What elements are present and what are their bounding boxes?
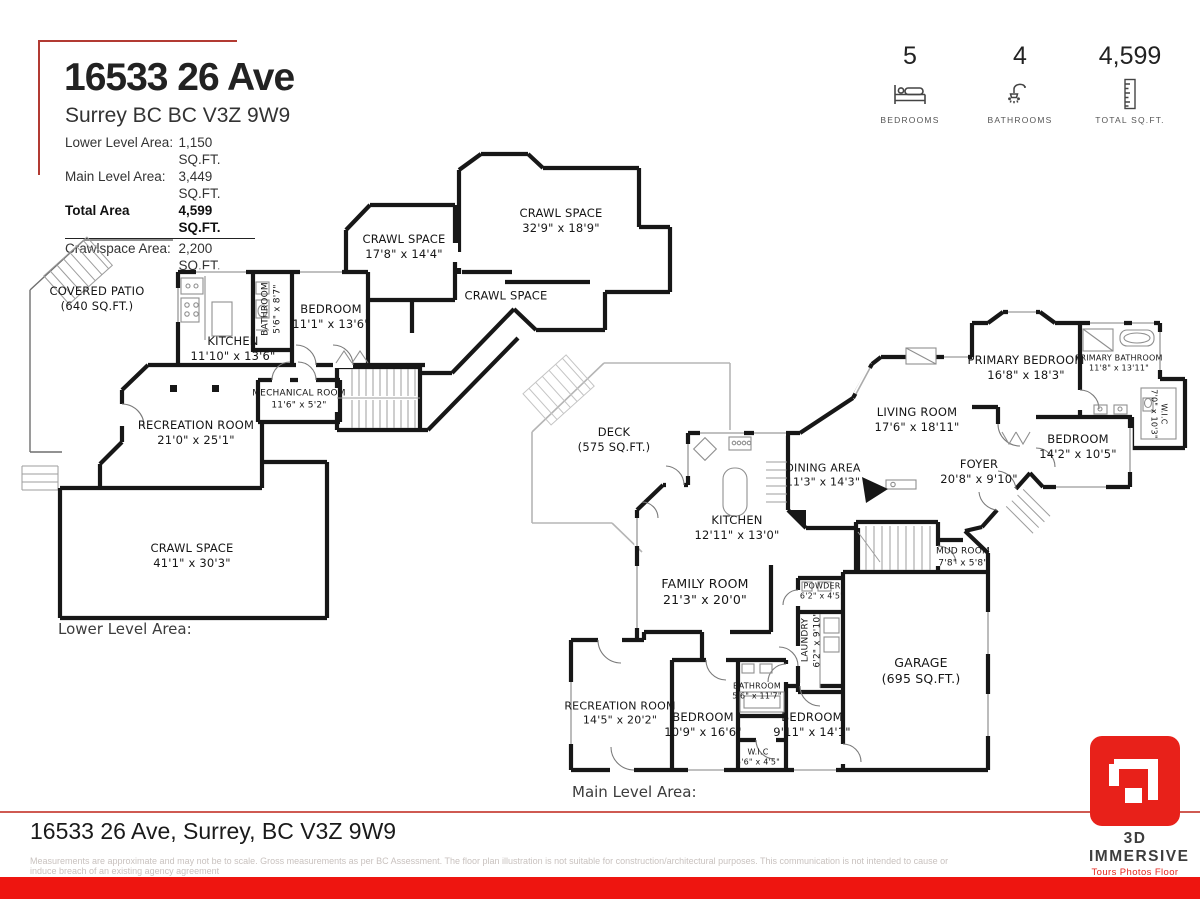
room-label-family-room: FAMILY ROOM21'3" x 20'0": [661, 576, 748, 609]
room-label-crawl-space-3: CRAWL SPACE: [465, 289, 548, 304]
room-label-primary-bedroom: PRIMARY BEDROOM16'8" x 18'3": [967, 353, 1084, 383]
bottom-red-bar: [0, 877, 1200, 899]
room-label-bedroom-lower: BEDROOM11'1" x 13'6": [292, 302, 370, 332]
deck-stairs-hatch: [523, 355, 594, 425]
room-label-bedroom-main-3: BEDROOM9'11" x 14'1": [773, 710, 851, 740]
footer-disclaimer: Measurements are approximate and may not…: [30, 856, 960, 876]
room-label-deck: DECK(575 SQ.FT.): [578, 425, 651, 455]
footer-divider: [0, 811, 1200, 813]
room-label-foyer: FOYER20'8" x 9'10": [940, 457, 1018, 487]
room-label-garage: GARAGE(695 SQ.FT.): [882, 655, 961, 688]
room-label-dining-area: DINING AREA11'3" x 14'3": [785, 462, 860, 491]
room-label-covered-patio: COVERED PATIO(640 SQ.FT.): [49, 284, 145, 314]
room-label-crawl-space-1: CRAWL SPACE17'8" x 14'4": [363, 232, 446, 262]
room-label-laundry: LAUNDRY6'2" x 9'10": [800, 612, 823, 667]
room-label-mechanical-room: MECHANICAL ROOM11'6" x 5'2": [252, 388, 346, 411]
floorplan-page: 16533 26 Ave Surrey BC BC V3Z 9W9 Lower …: [0, 0, 1200, 899]
room-label-bedroom-main-1: BEDROOM14'2" x 10'5": [1039, 432, 1117, 462]
lower-level-caption: Lower Level Area:: [58, 620, 192, 638]
room-label-recreation-room-main: RECREATION ROOM14'5" x 20'2": [564, 700, 675, 729]
room-label-bathroom-lower: BATHROOM5'6" x 8'7": [260, 282, 283, 336]
room-label-bathroom-main: BATHROOM5'6" x 11'7": [732, 682, 781, 703]
room-label-mud-room: MUD ROOM7'8" x 5'8": [936, 546, 990, 569]
room-label-crawl-space-2: CRAWL SPACE32'9" x 18'9": [520, 206, 603, 236]
room-label-powder: POWDER6'2" x 4'5": [800, 582, 844, 603]
main-level-caption: Main Level Area:: [572, 783, 697, 801]
room-label-wic-primary: W.I.C7'0" x 10'3": [1148, 389, 1169, 438]
logo-title: 3D IMMERSIVE: [1089, 830, 1181, 866]
room-label-wic-main: W.I.C5'6" x 4'5": [736, 748, 780, 769]
room-label-recreation-room-lower: RECREATION ROOM21'0" x 25'1": [138, 418, 254, 448]
room-label-primary-bathroom: PRIMARY BATHROOM11'8" x 13'11": [1075, 354, 1162, 375]
company-logo: 3D IMMERSIVE Tours Photos Floor Plans: [1089, 736, 1181, 889]
room-label-kitchen-lower: KITCHEN11'10" x 13'6": [190, 334, 275, 364]
room-label-kitchen-main: KITCHEN12'11" x 13'0": [694, 513, 779, 543]
footer-address: 16533 26 Ave, Surrey, BC V3Z 9W9: [30, 818, 396, 845]
room-label-living-room: LIVING ROOM17'6" x 18'11": [874, 405, 959, 435]
room-label-crawl-space-4: CRAWL SPACE41'1" x 30'3": [151, 541, 234, 571]
logo-icon: [1090, 736, 1180, 826]
room-label-bedroom-main-2: BEDROOM10'9" x 16'6": [664, 710, 742, 740]
